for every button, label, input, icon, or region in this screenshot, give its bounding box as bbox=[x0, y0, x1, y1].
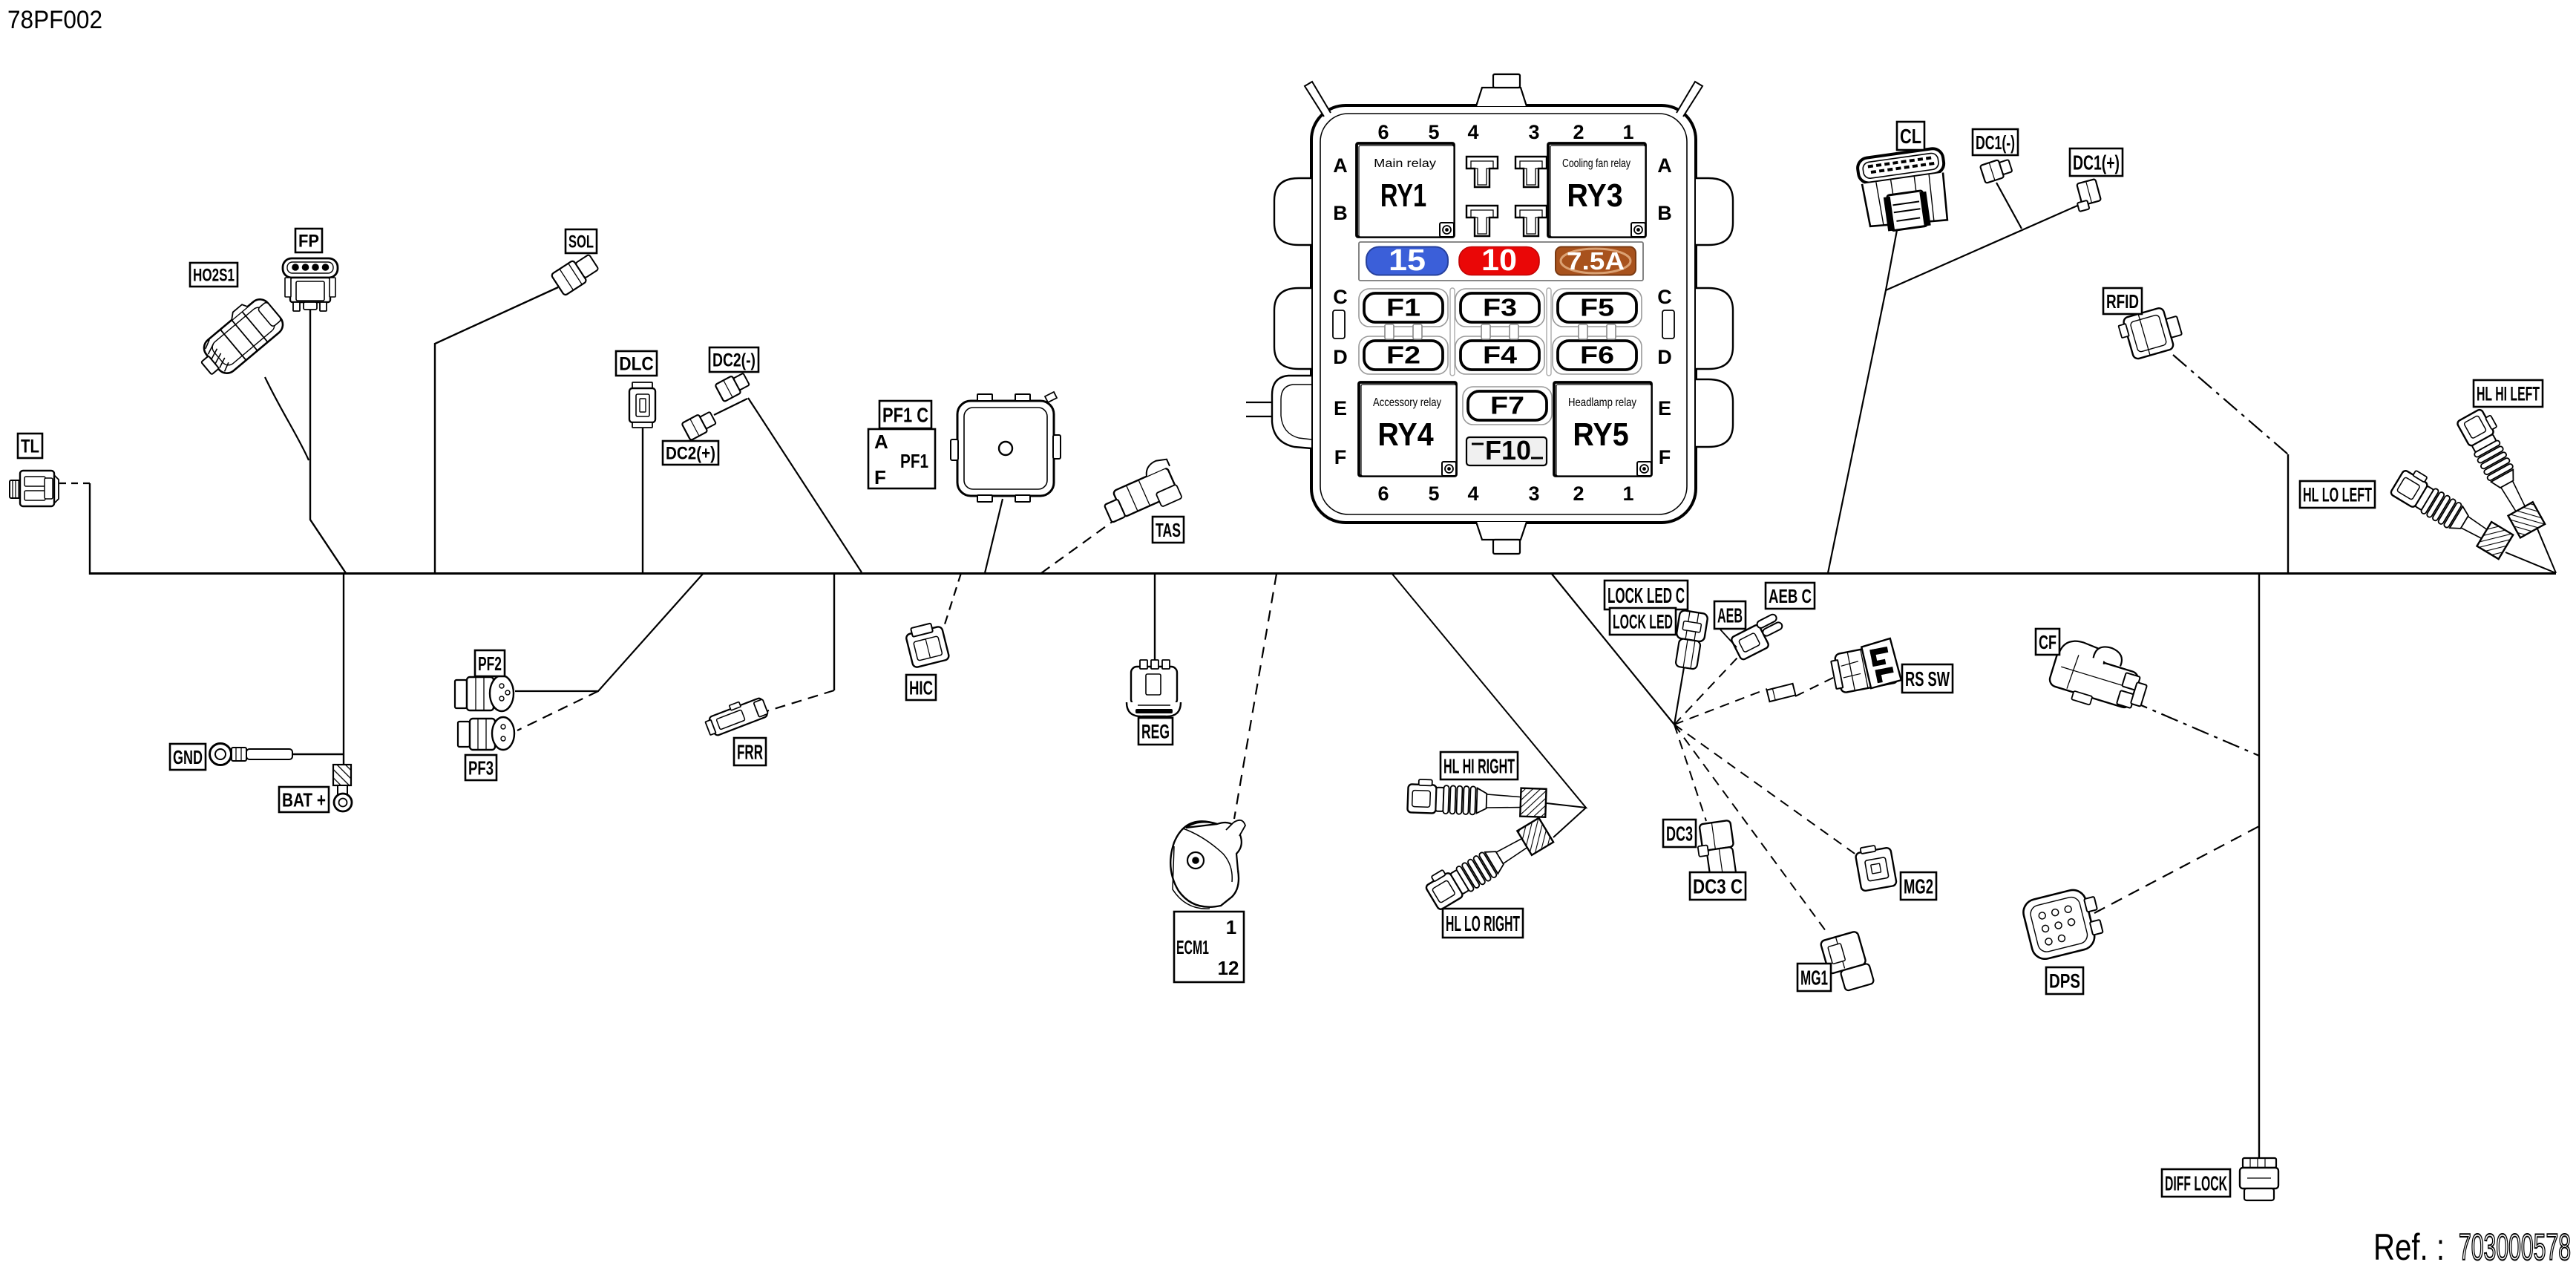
svg-text:RY4: RY4 bbox=[1377, 416, 1434, 453]
svg-text:78PF002: 78PF002 bbox=[7, 6, 102, 34]
svg-text:A: A bbox=[874, 431, 888, 453]
svg-text:RFID: RFID bbox=[2106, 290, 2139, 313]
svg-text:15: 15 bbox=[1389, 243, 1426, 277]
svg-text:D: D bbox=[1333, 346, 1348, 368]
svg-text:F: F bbox=[1659, 446, 1671, 468]
svg-text:6: 6 bbox=[1377, 483, 1389, 505]
svg-text:PF3: PF3 bbox=[468, 756, 494, 779]
svg-text:B: B bbox=[1333, 202, 1348, 224]
svg-text:7.5A: 7.5A bbox=[1567, 247, 1625, 275]
svg-text:1: 1 bbox=[1622, 483, 1633, 505]
svg-text:DC1(+): DC1(+) bbox=[2073, 151, 2120, 174]
svg-text:DPS: DPS bbox=[2049, 970, 2080, 993]
svg-text:SOL: SOL bbox=[568, 232, 594, 252]
svg-text:F10: F10 bbox=[1485, 435, 1531, 465]
svg-text:4: 4 bbox=[1467, 121, 1478, 143]
svg-text:HL LO RIGHT: HL LO RIGHT bbox=[1446, 912, 1520, 936]
svg-text:DLC: DLC bbox=[619, 354, 654, 375]
svg-text:GND: GND bbox=[173, 746, 203, 768]
svg-text:Main relay: Main relay bbox=[1374, 157, 1436, 170]
svg-text:HL LO LEFT: HL LO LEFT bbox=[2303, 484, 2372, 506]
svg-text:5: 5 bbox=[1428, 483, 1439, 505]
svg-text:10: 10 bbox=[1481, 243, 1517, 277]
svg-text:RY3: RY3 bbox=[1567, 177, 1622, 214]
svg-text:F: F bbox=[874, 466, 886, 488]
svg-text:TAS: TAS bbox=[1156, 519, 1181, 541]
svg-text:PF1: PF1 bbox=[900, 450, 928, 472]
svg-text:12: 12 bbox=[1218, 957, 1239, 979]
svg-text:FP: FP bbox=[298, 232, 319, 252]
svg-text:F: F bbox=[1334, 446, 1347, 468]
svg-text:RY5: RY5 bbox=[1573, 416, 1628, 453]
svg-text:B: B bbox=[1657, 202, 1672, 224]
svg-text:F7: F7 bbox=[1490, 392, 1524, 419]
svg-text:4: 4 bbox=[1467, 483, 1478, 505]
svg-text:PF1 C: PF1 C bbox=[882, 404, 928, 427]
svg-text:F3: F3 bbox=[1483, 294, 1517, 321]
svg-text:CL: CL bbox=[1900, 125, 1921, 148]
svg-text:F5: F5 bbox=[1580, 294, 1614, 321]
svg-text:5: 5 bbox=[1428, 121, 1439, 143]
svg-text:F2: F2 bbox=[1386, 341, 1420, 369]
svg-text:AEB C: AEB C bbox=[1769, 585, 1812, 607]
svg-text:6: 6 bbox=[1377, 121, 1389, 143]
svg-text:D: D bbox=[1657, 346, 1672, 368]
svg-text:DC3 C: DC3 C bbox=[1693, 875, 1743, 898]
svg-text:HL HI LEFT: HL HI LEFT bbox=[2477, 383, 2540, 405]
svg-text:AEB: AEB bbox=[1717, 604, 1743, 627]
svg-text:HIC: HIC bbox=[909, 676, 933, 699]
svg-text:Accessory relay: Accessory relay bbox=[1373, 396, 1441, 409]
svg-text:DIFF LOCK: DIFF LOCK bbox=[2165, 1172, 2227, 1195]
svg-text:Cooling fan relay: Cooling fan relay bbox=[1562, 157, 1631, 170]
svg-text:DC2(-): DC2(-) bbox=[712, 350, 756, 371]
svg-text:RS SW: RS SW bbox=[1905, 667, 1950, 690]
svg-text:2: 2 bbox=[1573, 121, 1584, 143]
svg-text:HL HI RIGHT: HL HI RIGHT bbox=[1443, 755, 1515, 778]
svg-text:C: C bbox=[1333, 286, 1348, 308]
svg-text:703000578: 703000578 bbox=[2459, 1226, 2571, 1262]
svg-text:1: 1 bbox=[1226, 916, 1236, 938]
svg-text:DC1(-): DC1(-) bbox=[1976, 131, 2015, 154]
svg-text:C: C bbox=[1657, 286, 1672, 308]
svg-text:E: E bbox=[1658, 397, 1671, 419]
svg-text:DC2(+): DC2(+) bbox=[666, 444, 715, 464]
svg-text:Headlamp relay: Headlamp relay bbox=[1568, 396, 1636, 409]
svg-text:A: A bbox=[1333, 154, 1348, 177]
svg-text:2: 2 bbox=[1573, 483, 1584, 505]
svg-text:REG: REG bbox=[1141, 721, 1170, 743]
svg-text:BAT +: BAT + bbox=[282, 788, 326, 811]
svg-text:MG2: MG2 bbox=[1904, 875, 1933, 898]
svg-text:FRR: FRR bbox=[737, 741, 763, 764]
svg-text:3: 3 bbox=[1528, 483, 1539, 505]
svg-text:E: E bbox=[1334, 397, 1347, 419]
svg-text:CF: CF bbox=[2039, 631, 2056, 653]
svg-text:DC3: DC3 bbox=[1666, 823, 1693, 846]
svg-text:PF2: PF2 bbox=[478, 653, 502, 675]
svg-text:F4: F4 bbox=[1483, 341, 1518, 369]
svg-text:TL: TL bbox=[21, 437, 39, 457]
svg-text:ECM1: ECM1 bbox=[1176, 936, 1209, 958]
svg-text:Ref. :: Ref. : bbox=[2373, 1226, 2445, 1262]
svg-text:HO2S1: HO2S1 bbox=[193, 266, 235, 286]
svg-text:F1: F1 bbox=[1386, 294, 1420, 321]
svg-text:LOCK LED C: LOCK LED C bbox=[1607, 584, 1685, 608]
svg-text:A: A bbox=[1657, 154, 1672, 177]
svg-text:1: 1 bbox=[1622, 121, 1633, 143]
svg-text:LOCK LED: LOCK LED bbox=[1613, 611, 1673, 633]
svg-text:3: 3 bbox=[1528, 121, 1539, 143]
svg-text:F6: F6 bbox=[1580, 341, 1614, 369]
svg-text:MG1: MG1 bbox=[1800, 967, 1828, 990]
svg-text:RY1: RY1 bbox=[1380, 177, 1426, 214]
